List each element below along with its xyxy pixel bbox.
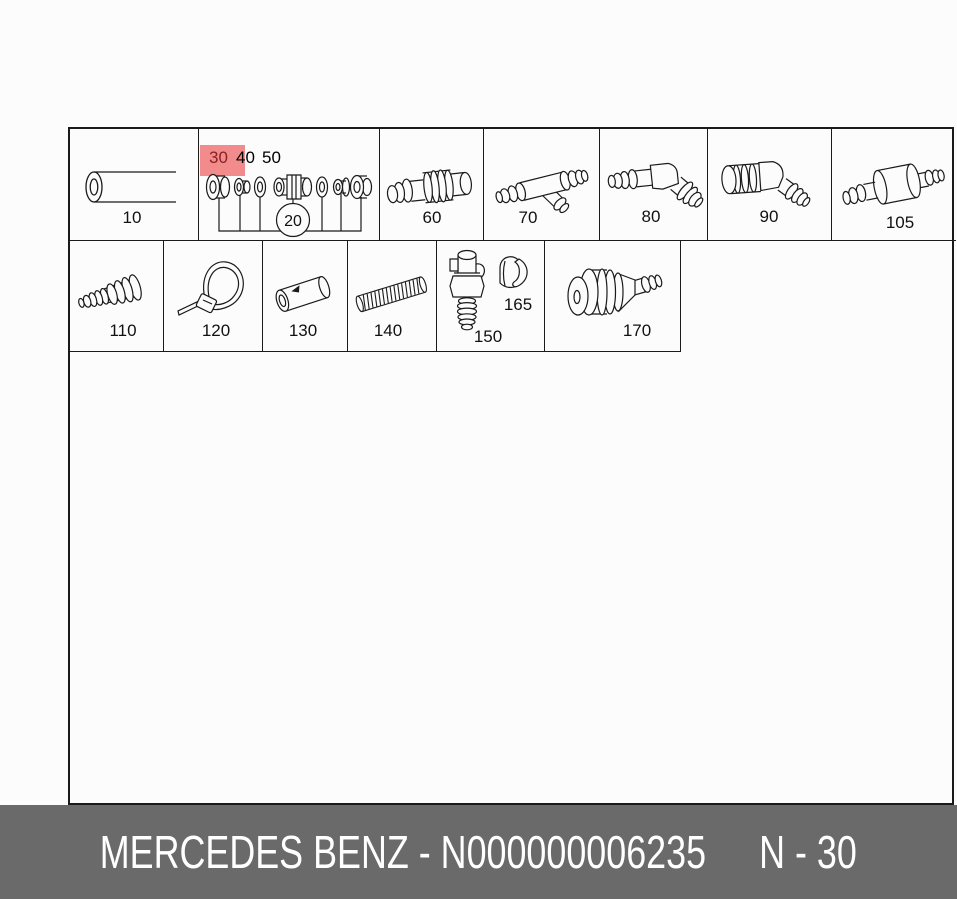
part-cell-20[interactable]: 20 30 40 50	[199, 129, 380, 241]
part-number-40[interactable]: 40	[236, 149, 255, 166]
part-number-60[interactable]: 60	[423, 209, 442, 226]
part-20-drawing: 20	[199, 129, 378, 239]
part-cell-140[interactable]: 140	[348, 241, 437, 352]
parts-catalog-page: 10	[0, 0, 957, 899]
part-cell-110[interactable]: 110	[70, 241, 164, 352]
part-cell-60[interactable]: 60	[380, 129, 484, 241]
part-number-165[interactable]: 165	[504, 296, 532, 313]
brand-and-part-number: MERCEDES BENZ - N000000006235	[100, 825, 706, 879]
part-70-drawing	[484, 129, 598, 239]
footer-banner: MERCEDES BENZ - N000000006235 N - 30	[0, 805, 957, 899]
part-cell-150[interactable]: 150 165	[437, 241, 545, 352]
part-number-90[interactable]: 90	[760, 208, 779, 225]
footer-text: MERCEDES BENZ - N000000006235 N - 30	[100, 825, 857, 879]
part-number-170[interactable]: 170	[623, 322, 651, 339]
part-cell-105[interactable]: 105	[832, 129, 956, 241]
part-number-105[interactable]: 105	[886, 214, 914, 231]
sheet-reference: N - 30	[759, 825, 857, 879]
part-cell-170[interactable]: 170	[545, 241, 681, 352]
part-cell-70[interactable]: 70	[484, 129, 600, 241]
part-number-20[interactable]: 20	[284, 213, 302, 230]
part-170-drawing	[545, 241, 679, 350]
part-number-50[interactable]: 50	[262, 149, 281, 166]
part-number-130[interactable]: 130	[289, 322, 317, 339]
part-number-140[interactable]: 140	[374, 322, 402, 339]
part-number-120[interactable]: 120	[202, 322, 230, 339]
part-number-80[interactable]: 80	[642, 208, 661, 225]
part-cell-120[interactable]: 120	[164, 241, 263, 352]
part-cell-90[interactable]: 90	[708, 129, 832, 241]
part-cell-10[interactable]: 10	[70, 129, 199, 241]
part-number-70[interactable]: 70	[519, 209, 538, 226]
part-number-30[interactable]: 30	[209, 149, 228, 166]
part-number-10[interactable]: 10	[123, 209, 142, 226]
part-cell-80[interactable]: 80	[600, 129, 708, 241]
parts-diagram-table: 10	[68, 127, 954, 805]
part-number-150[interactable]: 150	[474, 328, 502, 345]
part-number-110[interactable]: 110	[109, 322, 136, 339]
part-cell-130[interactable]: 130	[263, 241, 348, 352]
